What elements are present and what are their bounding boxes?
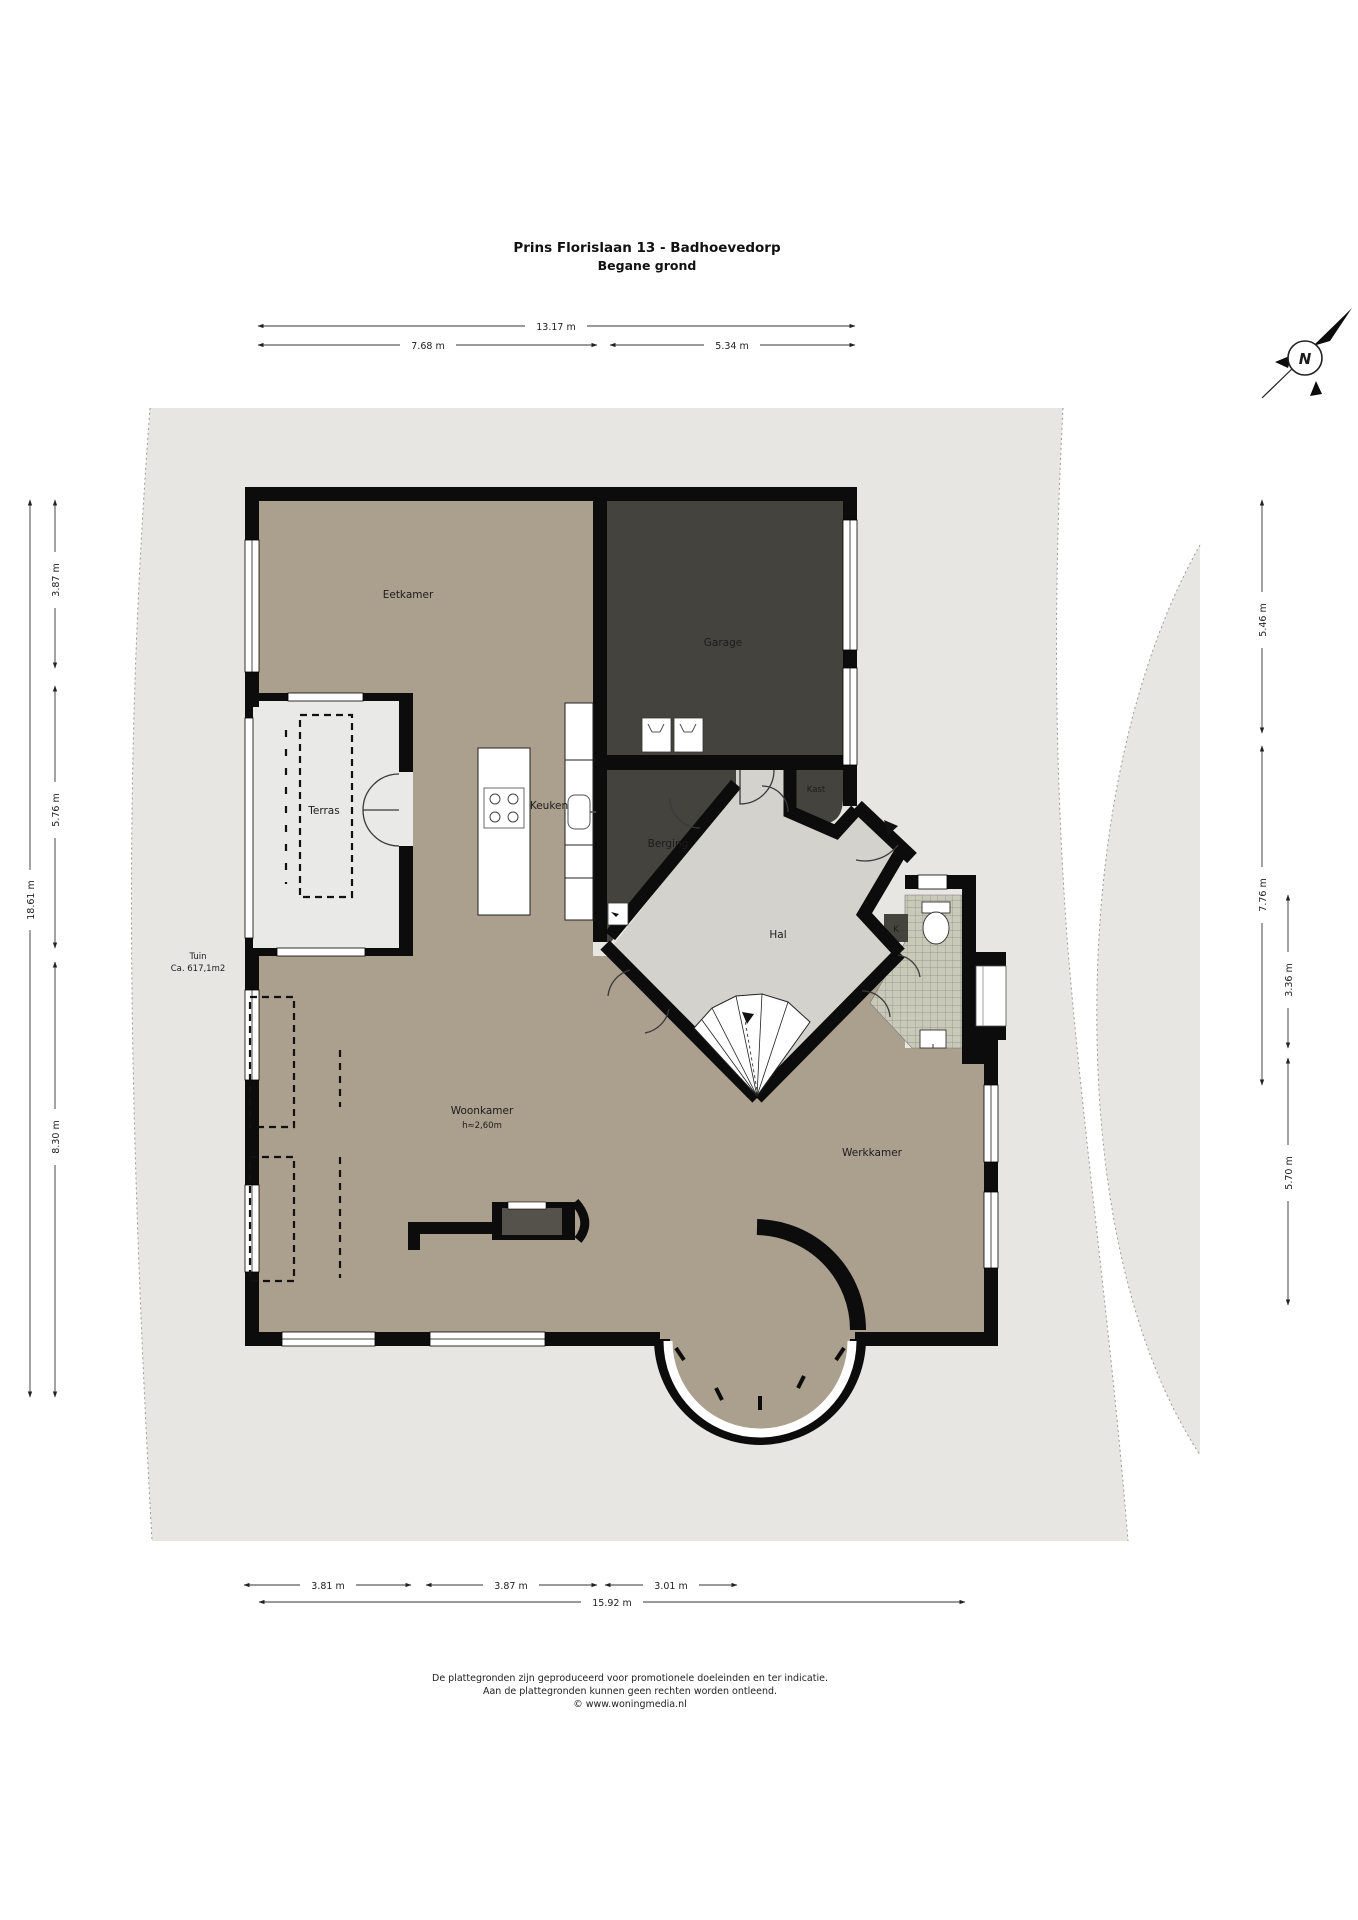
window <box>984 1192 998 1268</box>
floor-garage <box>607 501 843 755</box>
label-garage: Garage <box>704 637 742 649</box>
label-woonkamer-height: h≈2,60m <box>462 1121 502 1131</box>
window <box>277 948 365 956</box>
footer-line2: Aan de plattegronden kunnen geen rechten… <box>0 1685 1260 1698</box>
compass: N <box>1262 308 1352 398</box>
dim-left-b: 5.76 m <box>51 793 62 826</box>
label-werkkamer: Werkkamer <box>842 1147 903 1159</box>
label-keuken: Keuken <box>530 800 568 812</box>
compass-needle-north <box>1313 308 1352 346</box>
dim-left-c: 8.30 m <box>51 1120 62 1153</box>
dim-right-b: 7.76 m <box>1258 878 1269 911</box>
window <box>430 1332 545 1346</box>
footer-line1: De plattegronden zijn geproduceerd voor … <box>0 1672 1260 1685</box>
window <box>245 990 259 1080</box>
kitchen-island <box>478 748 530 915</box>
window <box>245 1185 259 1272</box>
entry-porch <box>976 966 1006 1026</box>
kitchen-sink-icon <box>568 795 590 829</box>
dim-left-a: 3.87 m <box>51 563 62 596</box>
window <box>843 668 857 765</box>
window <box>288 693 363 701</box>
label-berging: Berging <box>648 838 689 850</box>
dim-bottom-c: 3.01 m <box>654 1581 687 1592</box>
dim-right-c: 3.36 m <box>1284 963 1295 996</box>
floorplan-drawing: Eetkamer Garage Terras Keuken Berging Ka… <box>0 0 1358 1920</box>
washer-icon <box>642 718 671 752</box>
label-tuin: Tuin <box>188 952 206 962</box>
label-eetkamer: Eetkamer <box>383 589 434 601</box>
dim-bottom-a: 3.81 m <box>311 1581 344 1592</box>
window <box>843 520 857 650</box>
compass-letter: N <box>1299 350 1312 368</box>
dim-bottom-total: 15.92 m <box>592 1598 631 1609</box>
footer-line3: © www.woningmedia.nl <box>0 1698 1260 1711</box>
label-tuin-area: Ca. 617,1m2 <box>171 964 226 974</box>
dim-top-total: 13.17 m <box>536 322 575 333</box>
label-woonkamer: Woonkamer <box>451 1105 514 1117</box>
dim-right-a: 5.46 m <box>1258 603 1269 636</box>
label-k-closet: K <box>893 925 899 935</box>
window <box>918 875 947 889</box>
footer: De plattegronden zijn geproduceerd voor … <box>0 1672 1260 1711</box>
dim-top-left: 7.68 m <box>411 341 444 352</box>
washer-icon <box>674 718 703 752</box>
window <box>282 1332 375 1346</box>
floorplan-page: Prins Florislaan 13 - Badhoevedorp Began… <box>0 0 1358 1920</box>
dim-top-right: 5.34 m <box>715 341 748 352</box>
window <box>245 718 253 938</box>
dim-left-outer: 18.61 m <box>26 880 37 919</box>
toilet-icon <box>922 902 950 944</box>
dim-bottom-b: 3.87 m <box>494 1581 527 1592</box>
stove-icon <box>484 788 524 828</box>
floor-terras <box>245 693 413 956</box>
dim-right-d: 5.70 m <box>1284 1156 1295 1189</box>
label-hal: Hal <box>769 929 786 941</box>
window <box>984 1085 998 1162</box>
label-kast: Kast <box>807 785 826 795</box>
window <box>245 540 259 672</box>
label-terras: Terras <box>307 805 339 817</box>
